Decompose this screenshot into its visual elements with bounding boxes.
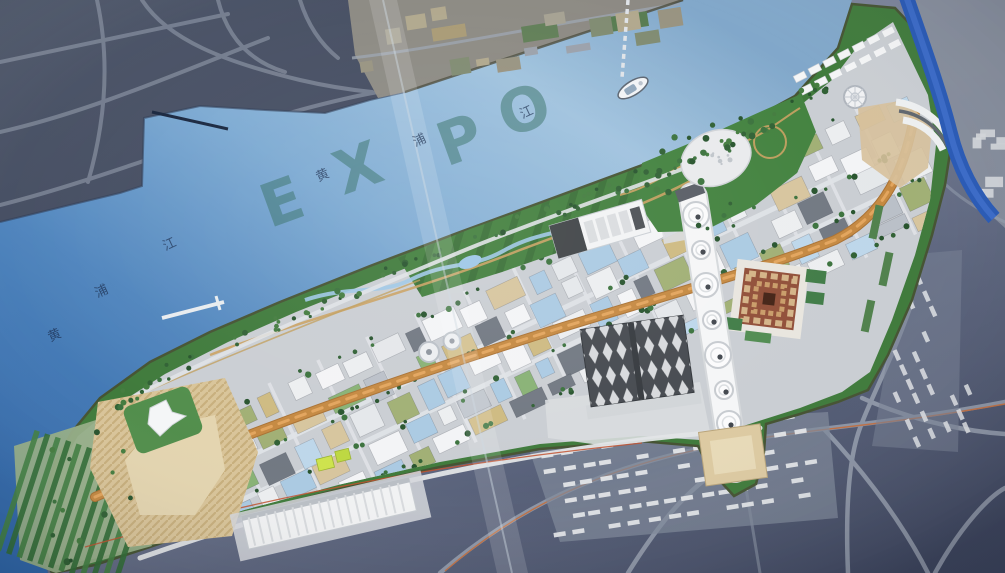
expo-masterplan-map: E X P O 黄 浦 江 黄 浦 江 (0, 0, 1005, 573)
map-canvas: E X P O 黄 浦 江 黄 浦 江 (0, 0, 1005, 573)
lighting-overlay (0, 0, 1005, 573)
